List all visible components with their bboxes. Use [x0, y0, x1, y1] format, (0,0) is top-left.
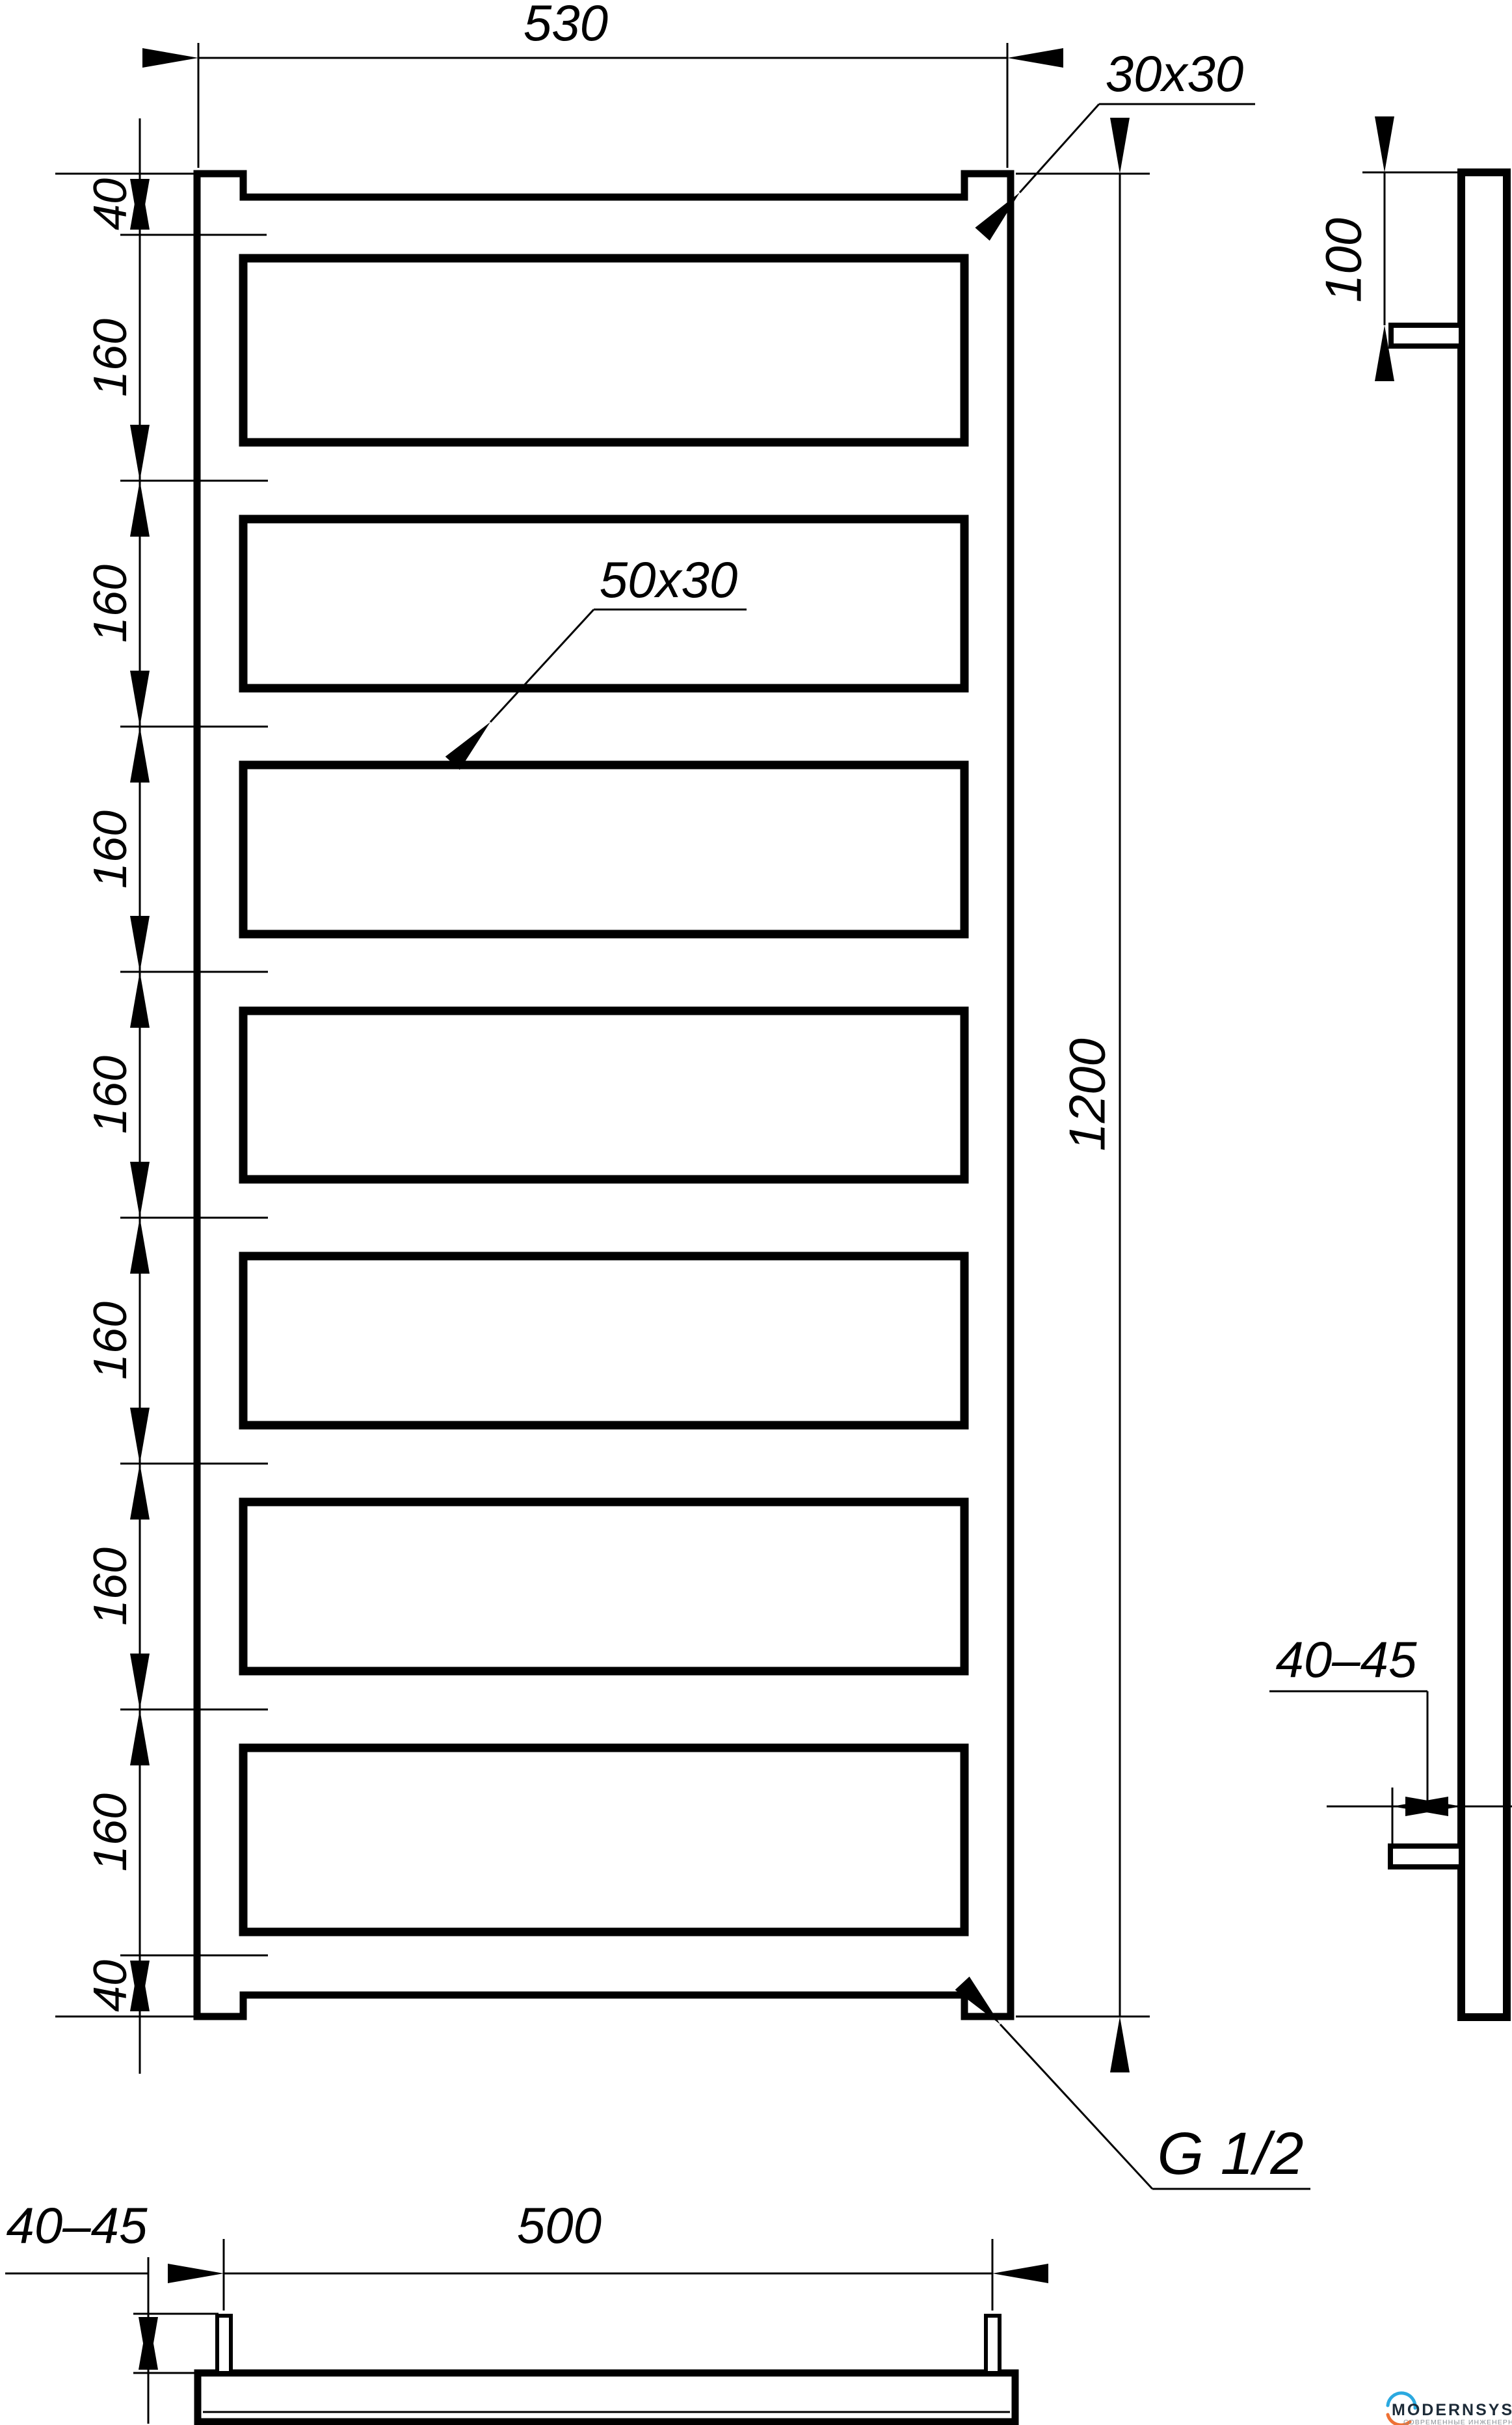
dim-1200: 1200 — [1016, 174, 1150, 2016]
towel-rail-technical-drawing: 40 160 160 160 160 160 160 160 40 530 12… — [0, 0, 1512, 2425]
front-window — [243, 258, 964, 442]
leader-line — [1000, 2024, 1152, 2189]
dim-label-160: 160 — [85, 1547, 137, 1626]
dim-label-160: 160 — [85, 1056, 137, 1134]
dim-label-530: 530 — [524, 0, 608, 51]
dim-label-40-top: 40 — [85, 178, 137, 230]
dim-label-160: 160 — [85, 565, 137, 643]
label-30x30: 30x30 — [1106, 45, 1244, 102]
dim-label-160: 160 — [85, 319, 137, 397]
dim-label-160: 160 — [85, 1302, 137, 1380]
side-bottom-bracket — [1390, 1846, 1461, 1867]
front-window — [243, 1748, 964, 1932]
leader-line — [1020, 104, 1099, 193]
label-g12: G 1/2 — [1157, 2121, 1303, 2187]
bottom-view: 500 40–45 — [5, 2197, 1015, 2424]
front-window — [243, 1502, 964, 1671]
dim-label-160: 160 — [85, 1793, 137, 1871]
dim-label-40-45-bottom: 40–45 — [7, 2197, 148, 2254]
logo-brand-text: MODERNSYS — [1392, 2401, 1512, 2419]
dim-label-40-45-side: 40–45 — [1276, 1631, 1418, 1688]
left-dimension-chain: 40 160 160 160 160 160 160 160 40 — [55, 118, 268, 2074]
side-top-bracket — [1391, 325, 1461, 346]
side-view: 100 40–45 — [1269, 172, 1512, 2017]
side-rail-tube — [1461, 172, 1507, 2017]
dim-label-1200: 1200 — [1059, 1038, 1116, 1151]
dim-label-40-bottom: 40 — [85, 1960, 137, 2012]
dim-label-160: 160 — [85, 811, 137, 889]
front-window — [243, 1256, 964, 1425]
dim-label-100: 100 — [1315, 218, 1372, 302]
front-view — [197, 174, 1011, 2016]
front-window — [243, 1011, 964, 1179]
bottom-right-bracket — [986, 2316, 1000, 2373]
logo-tagline-text: СОВРЕМЕННЫЕ ИНЖЕНЕРНЫЕ СИСТЕМЫ — [1403, 2418, 1512, 2425]
dim-label-500: 500 — [517, 2197, 602, 2254]
front-window — [243, 765, 964, 934]
callout-g12: G 1/2 — [1000, 2024, 1310, 2189]
dim-530: 530 — [198, 0, 1007, 168]
callout-30x30: 30x30 — [1020, 45, 1255, 193]
label-50x30: 50x30 — [600, 551, 738, 608]
logo: MODERNSYS СОВРЕМЕННЫЕ ИНЖЕНЕРНЫЕ СИСТЕМЫ — [1388, 2393, 1512, 2425]
bottom-bar — [198, 2373, 1015, 2422]
bottom-left-bracket — [217, 2316, 231, 2373]
